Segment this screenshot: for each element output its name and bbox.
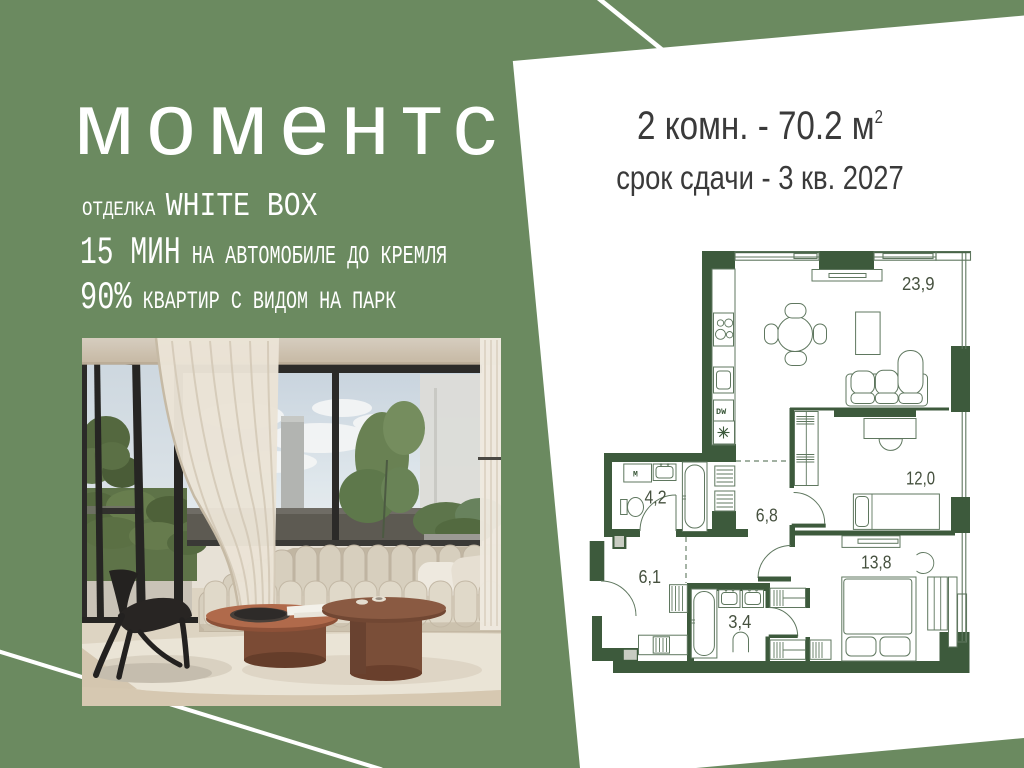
svg-text:4,2: 4,2 xyxy=(645,488,667,508)
svg-text:13,8: 13,8 xyxy=(861,553,892,573)
svg-text:3,4: 3,4 xyxy=(728,612,751,632)
svg-text:6,1: 6,1 xyxy=(639,567,662,587)
svg-text:12,0: 12,0 xyxy=(906,469,935,489)
svg-text:6,8: 6,8 xyxy=(756,506,778,526)
svg-text:23,9: 23,9 xyxy=(902,274,935,294)
svg-text:DW: DW xyxy=(716,407,727,417)
svg-text:M: M xyxy=(633,471,638,480)
